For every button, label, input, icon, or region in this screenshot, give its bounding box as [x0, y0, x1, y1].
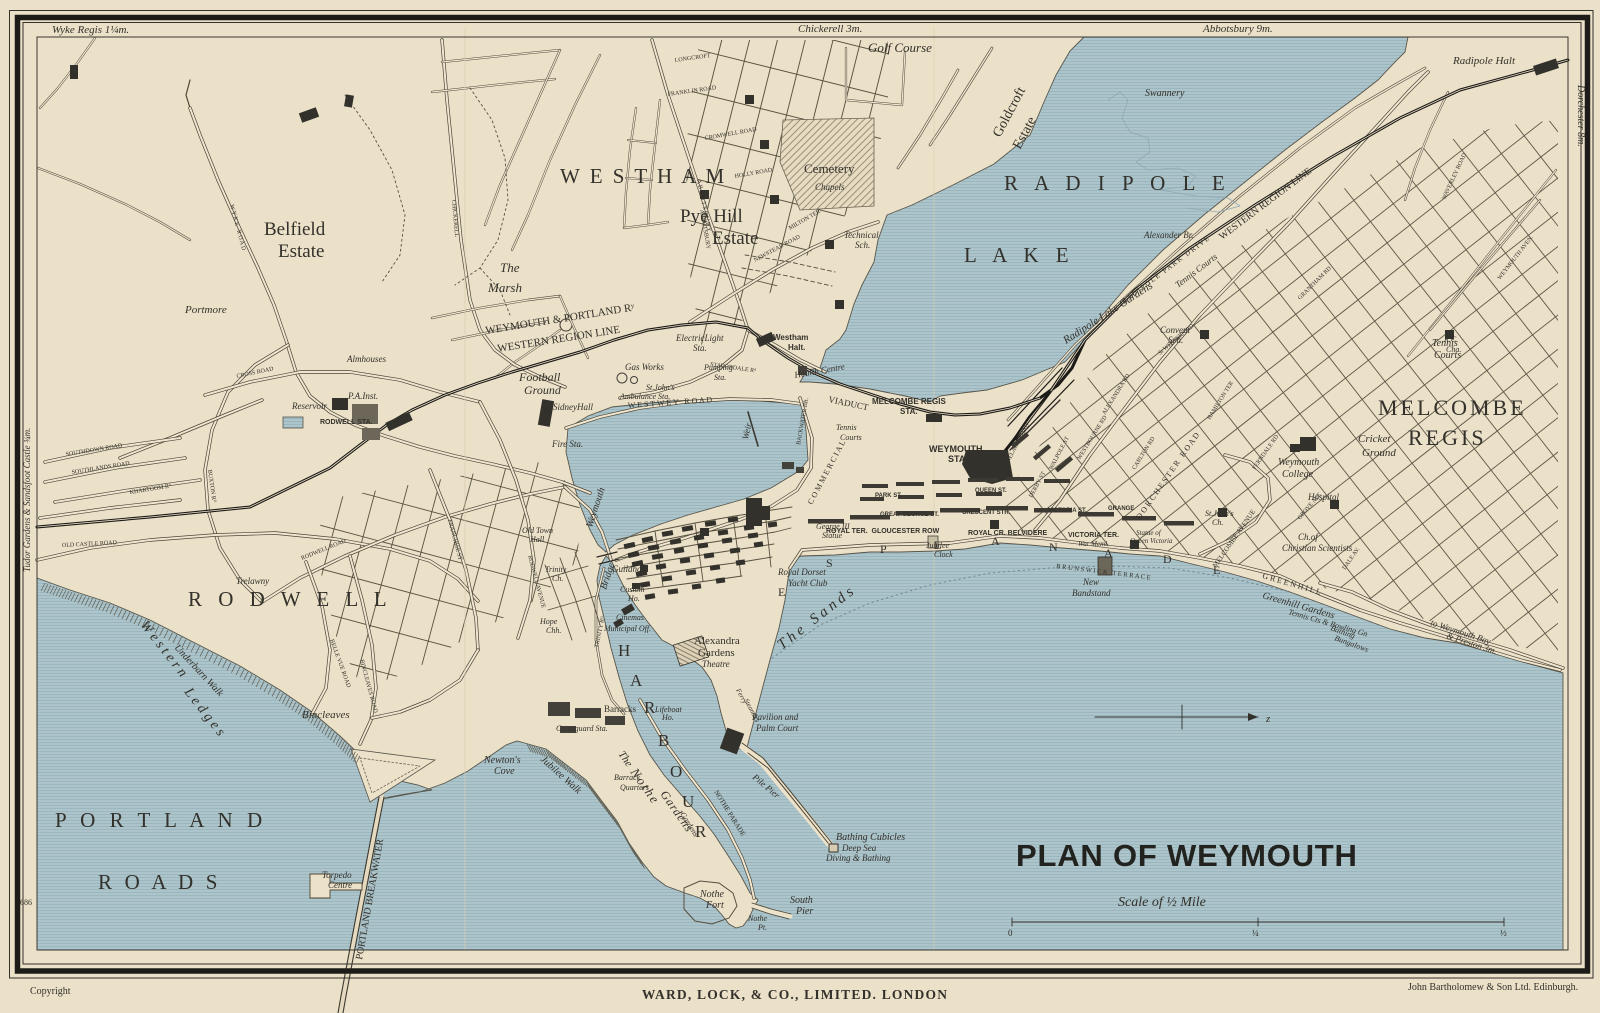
svg-text:Sta.: Sta. — [714, 373, 726, 382]
svg-text:Copyright: Copyright — [30, 986, 71, 997]
svg-text:The: The — [500, 260, 520, 275]
svg-text:686: 686 — [20, 898, 32, 907]
svg-text:E: E — [778, 585, 785, 599]
svg-text:PARK ST.: PARK ST. — [875, 493, 902, 499]
svg-text:Weymouth: Weymouth — [1278, 457, 1319, 468]
svg-text:N: N — [1049, 540, 1058, 554]
svg-text:D: D — [1163, 552, 1172, 566]
svg-text:Royal Dorset: Royal Dorset — [777, 567, 826, 577]
svg-text:Guildhall: Guildhall — [612, 564, 647, 574]
svg-text:Centre: Centre — [328, 880, 352, 890]
svg-text:Statue of: Statue of — [1136, 529, 1162, 537]
svg-text:VICTORIA ST.: VICTORIA ST. — [1048, 508, 1087, 514]
svg-text:Cricket: Cricket — [1358, 433, 1391, 445]
svg-text:Coastguard Sta.: Coastguard Sta. — [556, 724, 608, 733]
svg-text:ROYAL CR. BELVIDERE: ROYAL CR. BELVIDERE — [968, 530, 1048, 537]
svg-text:Nothe: Nothe — [699, 889, 724, 900]
svg-text:College: College — [1282, 469, 1314, 480]
svg-text:Tennis: Tennis — [836, 423, 857, 432]
svg-text:New: New — [1082, 577, 1099, 587]
svg-text:Bincleaves: Bincleaves — [302, 709, 350, 721]
svg-text:P: P — [880, 542, 887, 556]
svg-text:Gardens: Gardens — [698, 647, 735, 659]
svg-text:S: S — [826, 556, 833, 570]
svg-text:Fort: Fort — [705, 900, 724, 911]
svg-text:CRESCENT STR.: CRESCENT STR. — [962, 510, 1011, 516]
svg-text:¼: ¼ — [1252, 928, 1259, 938]
svg-text:Jubilee: Jubilee — [926, 541, 950, 550]
svg-text:ROYAL TER. GLOUCESTER ROW: ROYAL TER. GLOUCESTER ROW — [826, 528, 940, 535]
svg-text:Almhouses: Almhouses — [346, 354, 386, 364]
svg-text:MELCOMBE: MELCOMBE — [1378, 395, 1527, 420]
svg-text:P O R T L A N D: P O R T L A N D — [55, 808, 267, 832]
svg-text:Pier: Pier — [795, 906, 813, 917]
svg-text:WARD, LOCK, & CO., LIMITED. LO: WARD, LOCK, & CO., LIMITED. LONDON — [642, 987, 948, 1002]
svg-text:Bandstand: Bandstand — [1072, 588, 1111, 598]
svg-text:Swannery: Swannery — [1145, 88, 1185, 99]
svg-text:Sch.: Sch. — [855, 240, 870, 250]
svg-text:Nothe: Nothe — [747, 914, 768, 923]
svg-text:WEYMOUTH: WEYMOUTH — [929, 444, 983, 454]
svg-text:Ground: Ground — [1362, 447, 1396, 459]
svg-text:Ho.: Ho. — [661, 713, 674, 722]
svg-text:Reservoir: Reservoir — [291, 401, 327, 411]
svg-text:Theatre: Theatre — [702, 659, 730, 669]
svg-text:R O D W E L L: R O D W E L L — [188, 587, 392, 611]
svg-text:Clock: Clock — [934, 550, 953, 559]
svg-text:Palm Court: Palm Court — [755, 723, 799, 733]
svg-text:South: South — [790, 895, 813, 906]
svg-text:Cemetery: Cemetery — [804, 161, 855, 176]
svg-text:Chapels: Chapels — [815, 182, 845, 192]
svg-text:Ground: Ground — [524, 383, 562, 397]
svg-text:VICTORIA TER.: VICTORIA TER. — [1068, 532, 1119, 539]
svg-text:Courts: Courts — [840, 433, 862, 442]
svg-text:z: z — [1265, 713, 1271, 725]
svg-text:Wyke Regis 1¼m.: Wyke Regis 1¼m. — [52, 24, 129, 36]
svg-text:O: O — [670, 762, 682, 781]
svg-text:Golf Course: Golf Course — [868, 40, 932, 55]
svg-text:St.John's: St.John's — [1205, 509, 1234, 518]
svg-text:A: A — [1104, 546, 1113, 560]
svg-text:Radipole Halt: Radipole Halt — [1452, 55, 1516, 67]
svg-text:Newton's: Newton's — [483, 755, 521, 766]
svg-text:Deep Sea: Deep Sea — [841, 843, 877, 853]
svg-text:REGIS: REGIS — [1408, 425, 1487, 450]
svg-text:Ch.: Ch. — [552, 574, 563, 583]
svg-text:Abbotsbury 9m.: Abbotsbury 9m. — [1202, 23, 1273, 35]
svg-text:Portmore: Portmore — [184, 304, 227, 316]
svg-text:John Bartholomew & Son Ltd. Ed: John Bartholomew & Son Ltd. Edinburgh. — [1408, 982, 1578, 993]
svg-text:STA.: STA. — [900, 407, 918, 416]
svg-text:Trinity: Trinity — [545, 565, 567, 574]
svg-text:Technical: Technical — [844, 230, 879, 240]
svg-text:Ch.of: Ch.of — [1298, 532, 1319, 542]
svg-text:Christian Scientists: Christian Scientists — [1282, 543, 1353, 553]
svg-text:Ch.: Ch. — [1212, 518, 1223, 527]
svg-text:Sta.: Sta. — [693, 343, 707, 353]
svg-text:Marsh: Marsh — [487, 280, 522, 295]
svg-text:Estate: Estate — [712, 228, 758, 249]
svg-text:Pt.: Pt. — [757, 923, 767, 932]
svg-text:Hope: Hope — [539, 617, 558, 626]
svg-text:Trelawny: Trelawny — [236, 576, 269, 586]
svg-text:St.John's: St.John's — [646, 383, 675, 392]
svg-text:Westham: Westham — [773, 333, 808, 342]
svg-text:Football: Football — [518, 370, 561, 384]
svg-text:MELCOMBE REGIS: MELCOMBE REGIS — [872, 397, 946, 406]
svg-text:Belfield: Belfield — [264, 219, 326, 240]
svg-text:STA: STA — [948, 454, 966, 464]
svg-text:Halt.: Halt. — [788, 343, 805, 352]
svg-text:Cinemas: Cinemas — [616, 613, 644, 622]
svg-text:R A D I P O L E: R A D I P O L E — [1004, 171, 1231, 195]
svg-text:Cove: Cove — [494, 766, 515, 777]
svg-text:Alexander Br.: Alexander Br. — [1143, 230, 1194, 240]
svg-text:Old Town: Old Town — [522, 526, 553, 535]
svg-text:Fire Sta.: Fire Sta. — [551, 439, 583, 449]
svg-text:Chickerell 3m.: Chickerell 3m. — [798, 23, 862, 35]
svg-text:ElectricLight: ElectricLight — [675, 333, 724, 343]
svg-text:GRANGE: GRANGE — [1108, 506, 1134, 512]
svg-text:Scale of ½ Mile: Scale of ½ Mile — [1118, 895, 1206, 910]
svg-text:Gas Works: Gas Works — [625, 362, 664, 372]
svg-text:GREAT GEORGE ST.: GREAT GEORGE ST. — [880, 512, 939, 518]
svg-text:0: 0 — [1008, 928, 1013, 938]
svg-text:A: A — [630, 671, 643, 690]
svg-text:Bathing Cubicles: Bathing Cubicles — [836, 832, 905, 843]
svg-text:½: ½ — [1500, 928, 1507, 938]
svg-text:Alexandra: Alexandra — [694, 635, 740, 647]
svg-text:Diving & Bathing: Diving & Bathing — [825, 853, 891, 863]
svg-text:B: B — [658, 731, 669, 750]
svg-text:H: H — [618, 641, 630, 660]
svg-text:Queen Victoria: Queen Victoria — [1130, 537, 1173, 545]
svg-text:R.C.: R.C. — [1443, 335, 1458, 344]
svg-text:PLAN OF WEYMOUTH: PLAN OF WEYMOUTH — [1016, 838, 1358, 873]
svg-text:Estate: Estate — [278, 241, 324, 262]
svg-text:SidneyHall: SidneyHall — [553, 402, 593, 412]
svg-text:Municipal Off.: Municipal Off. — [603, 624, 651, 633]
svg-text:R O A D S: R O A D S — [98, 870, 221, 894]
svg-text:QUEEN ST.: QUEEN ST. — [975, 488, 1007, 494]
svg-text:Custom: Custom — [620, 585, 645, 594]
svg-text:Chh.: Chh. — [546, 626, 561, 635]
svg-text:Yacht Club: Yacht Club — [788, 578, 828, 588]
svg-text:Cha.: Cha. — [1446, 345, 1461, 354]
svg-text:Torpedo: Torpedo — [322, 870, 352, 880]
svg-text:RODWELL STA.: RODWELL STA. — [320, 419, 373, 426]
svg-text:L A K E: L A K E — [964, 243, 1075, 267]
svg-text:Barracks: Barracks — [604, 704, 636, 714]
svg-text:Hall: Hall — [529, 535, 545, 544]
svg-text:Ho.: Ho. — [627, 594, 640, 603]
svg-text:War Meml.: War Meml. — [1078, 540, 1109, 548]
svg-text:P.A.Inst.: P.A.Inst. — [347, 391, 378, 401]
